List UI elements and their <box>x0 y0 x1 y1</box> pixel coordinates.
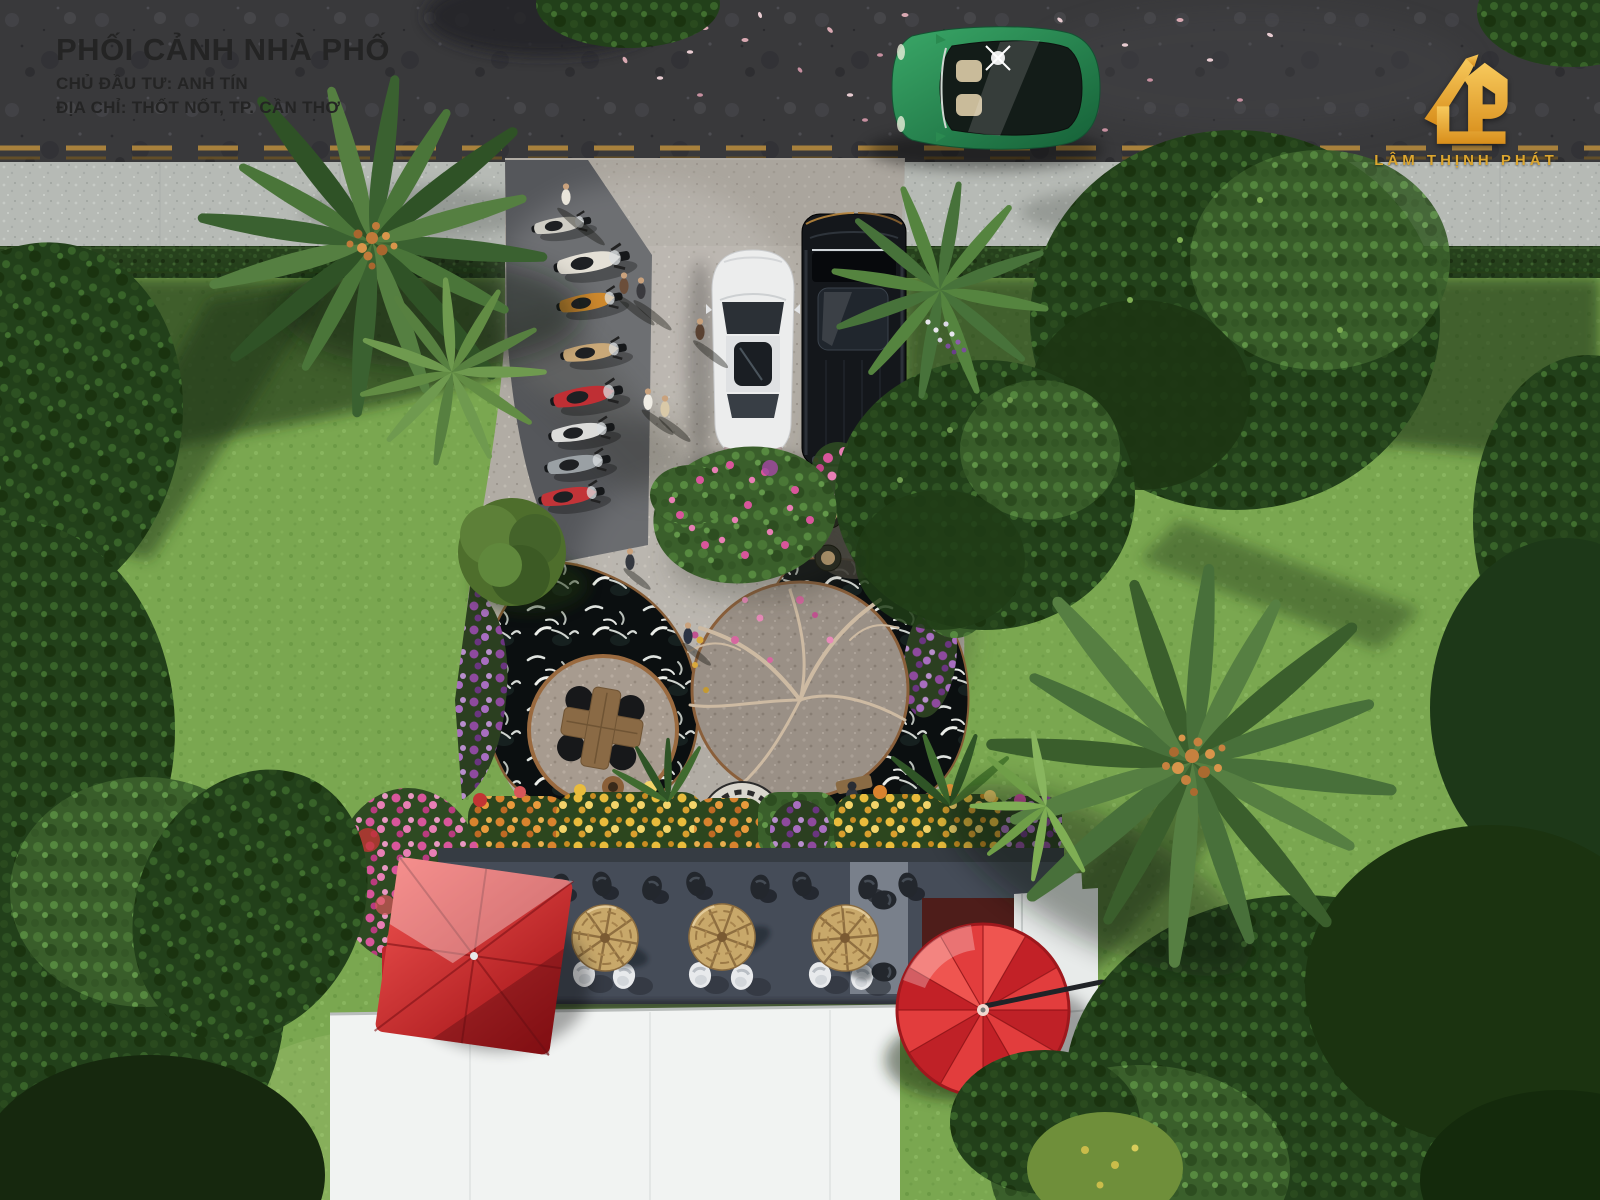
page-title: PHỐI CẢNH NHÀ PHỐ <box>56 34 390 67</box>
title-block: PHỐI CẢNH NHÀ PHỐ CHỦ ĐẦU TƯ: ANH TÍN ĐỊ… <box>56 34 390 118</box>
render-canvas: PHỐI CẢNH NHÀ PHỐ CHỦ ĐẦU TƯ: ANH TÍN ĐỊ… <box>0 0 1600 1200</box>
green-suv-driving <box>867 27 1103 170</box>
dry-branch-tree-platform <box>688 582 908 798</box>
company-name: LÂM THỊNH PHÁT <box>1366 152 1566 169</box>
company-logo: LÂM THỊNH PHÁT <box>1366 44 1566 169</box>
investor-line: CHỦ ĐẦU TƯ: ANH TÍN <box>56 74 390 94</box>
tp-house-monogram-icon <box>1414 44 1518 148</box>
tree-big-right-center <box>835 360 1135 630</box>
wooden-cross-table <box>554 682 648 775</box>
aerial-scene <box>0 0 1600 1200</box>
address-line: ĐỊA CHỈ: THỐT NỐT, TP. CẦN THƠ <box>56 98 390 118</box>
